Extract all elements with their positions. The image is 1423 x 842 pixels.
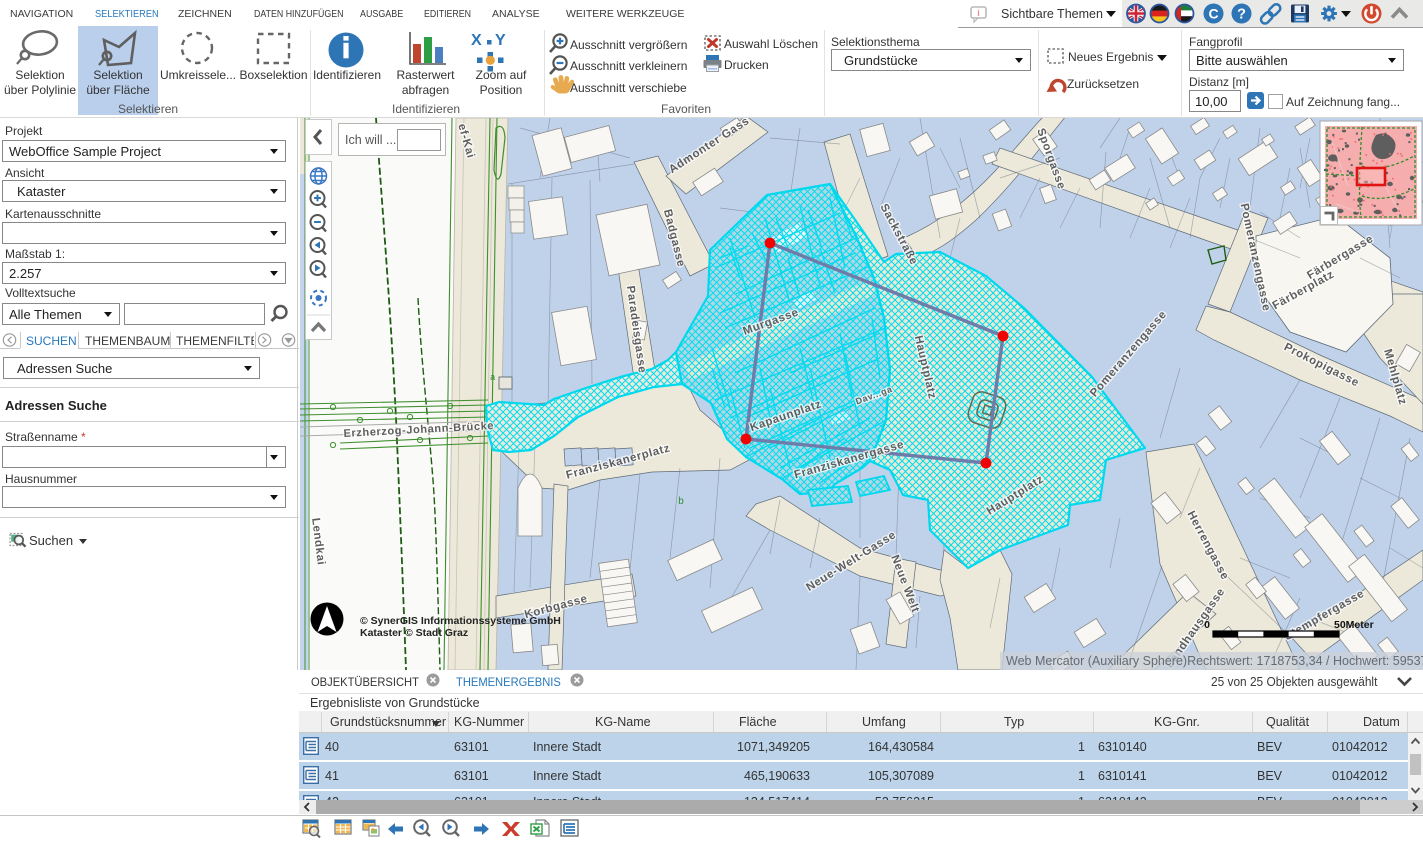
svg-text:Y: Y [495,32,506,49]
svg-text:?: ? [1237,7,1246,23]
svg-text:© SynerGIS Informationssysteme: © SynerGIS Informationssysteme GmbH [360,615,561,627]
svg-text:Web Mercator (Auxiliary Sphere: Web Mercator (Auxiliary Sphere)Rechtswer… [1006,654,1423,668]
svg-text:50Meter: 50Meter [1334,619,1374,631]
svg-text:i: i [977,8,980,18]
svg-text:a: a [490,373,496,383]
svg-text:b: b [678,496,684,508]
svg-text:0: 0 [1204,619,1210,631]
svg-text:X: X [471,32,482,49]
svg-text:Kataster © Stadt Graz: Kataster © Stadt Graz [360,627,468,639]
svg-text:C: C [1208,6,1218,22]
